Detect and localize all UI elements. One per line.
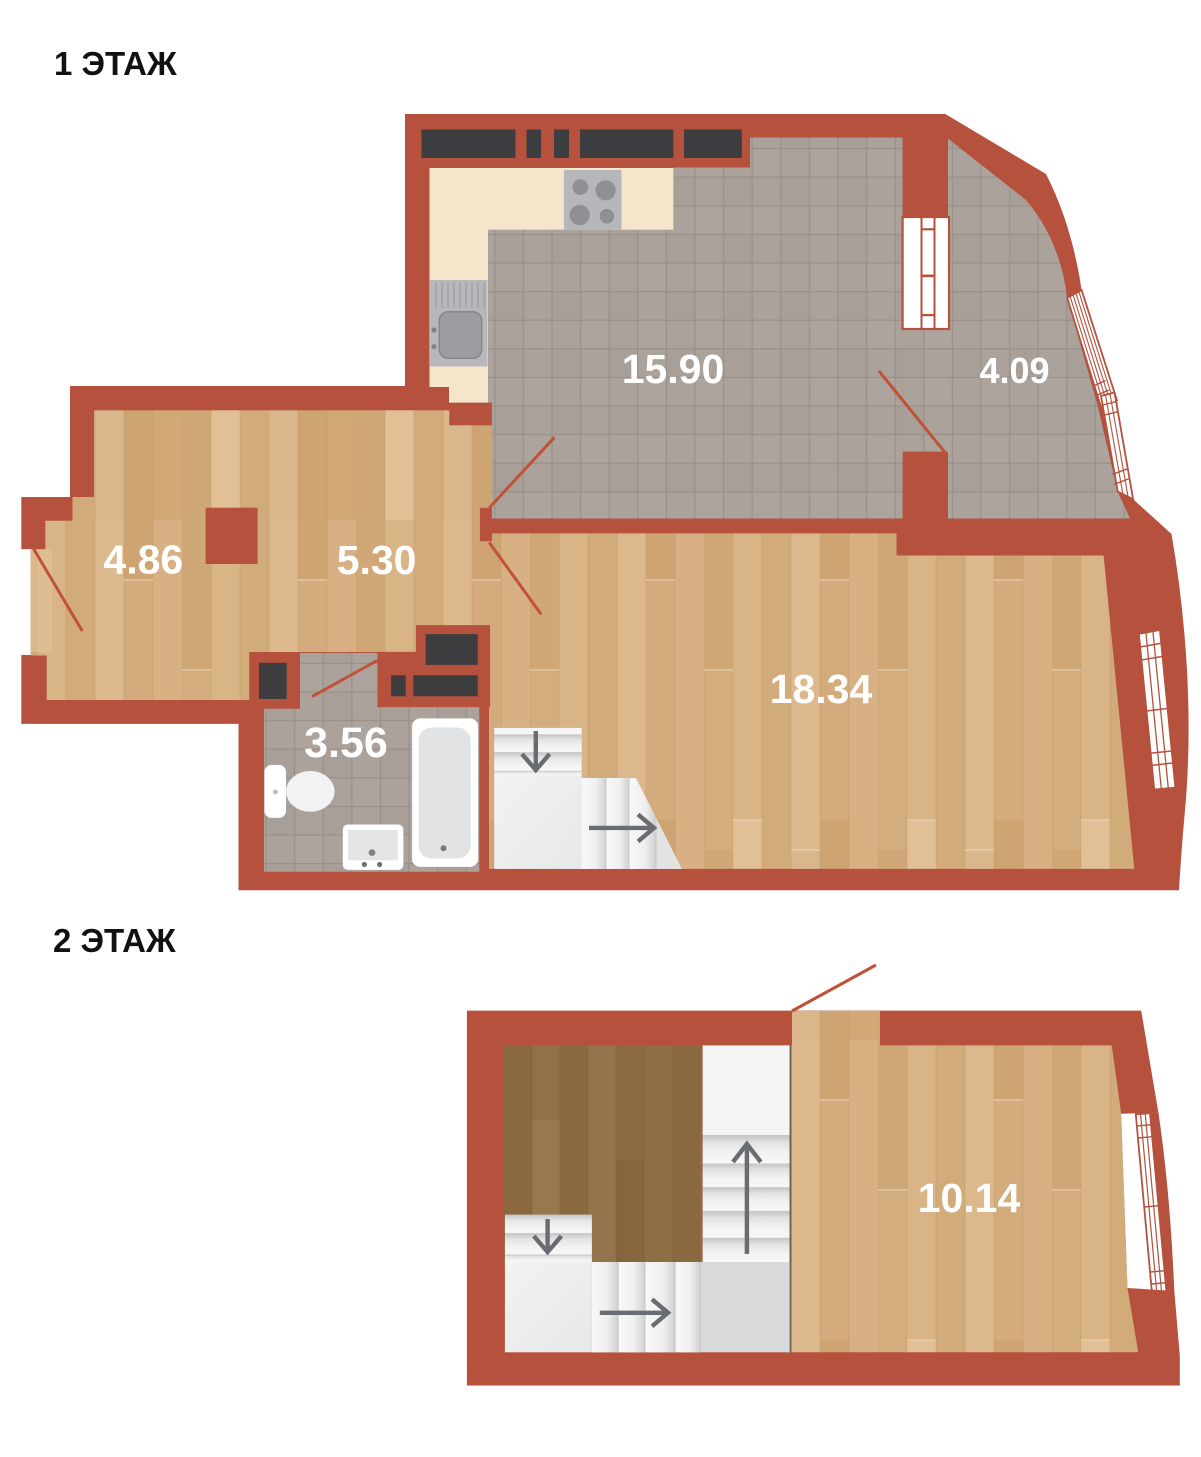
svg-text:5.30: 5.30 (337, 537, 417, 583)
svg-text:15.90: 15.90 (622, 346, 725, 392)
svg-text:10.14: 10.14 (918, 1175, 1021, 1221)
svg-text:18.34: 18.34 (770, 666, 873, 712)
svg-text:4.09: 4.09 (979, 350, 1049, 391)
svg-text:1 ЭТАЖ: 1 ЭТАЖ (54, 45, 177, 82)
svg-text:3.56: 3.56 (304, 719, 388, 767)
svg-text:4.86: 4.86 (103, 536, 183, 582)
svg-text:2 ЭТАЖ: 2 ЭТАЖ (53, 922, 176, 959)
